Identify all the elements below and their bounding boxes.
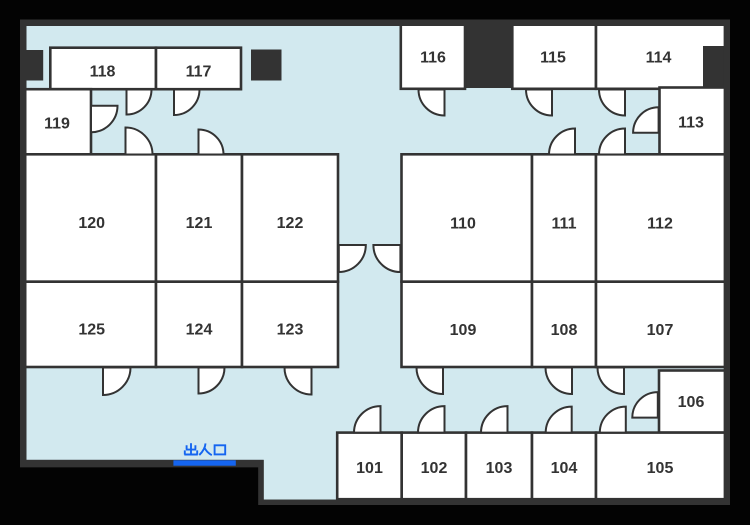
svg-text:120: 120 bbox=[78, 215, 105, 232]
svg-text:118: 118 bbox=[90, 63, 116, 80]
svg-text:109: 109 bbox=[450, 322, 477, 339]
svg-text:117: 117 bbox=[186, 63, 212, 80]
svg-text:113: 113 bbox=[678, 114, 704, 131]
svg-text:116: 116 bbox=[420, 49, 446, 66]
svg-text:121: 121 bbox=[186, 215, 213, 232]
svg-text:114: 114 bbox=[646, 49, 672, 66]
svg-text:104: 104 bbox=[551, 460, 578, 477]
svg-text:110: 110 bbox=[450, 215, 476, 232]
svg-text:119: 119 bbox=[44, 116, 70, 133]
svg-text:112: 112 bbox=[647, 215, 673, 232]
svg-text:124: 124 bbox=[186, 321, 213, 338]
svg-text:105: 105 bbox=[647, 460, 674, 477]
svg-text:125: 125 bbox=[78, 321, 105, 338]
svg-text:103: 103 bbox=[486, 460, 513, 477]
svg-text:123: 123 bbox=[277, 321, 304, 338]
svg-text:108: 108 bbox=[551, 322, 578, 339]
svg-text:102: 102 bbox=[421, 460, 448, 477]
svg-text:101: 101 bbox=[356, 460, 383, 477]
svg-text:107: 107 bbox=[647, 322, 674, 339]
svg-text:122: 122 bbox=[277, 215, 304, 232]
svg-text:115: 115 bbox=[540, 49, 566, 66]
svg-text:111: 111 bbox=[552, 215, 577, 232]
svg-text:106: 106 bbox=[678, 394, 705, 411]
